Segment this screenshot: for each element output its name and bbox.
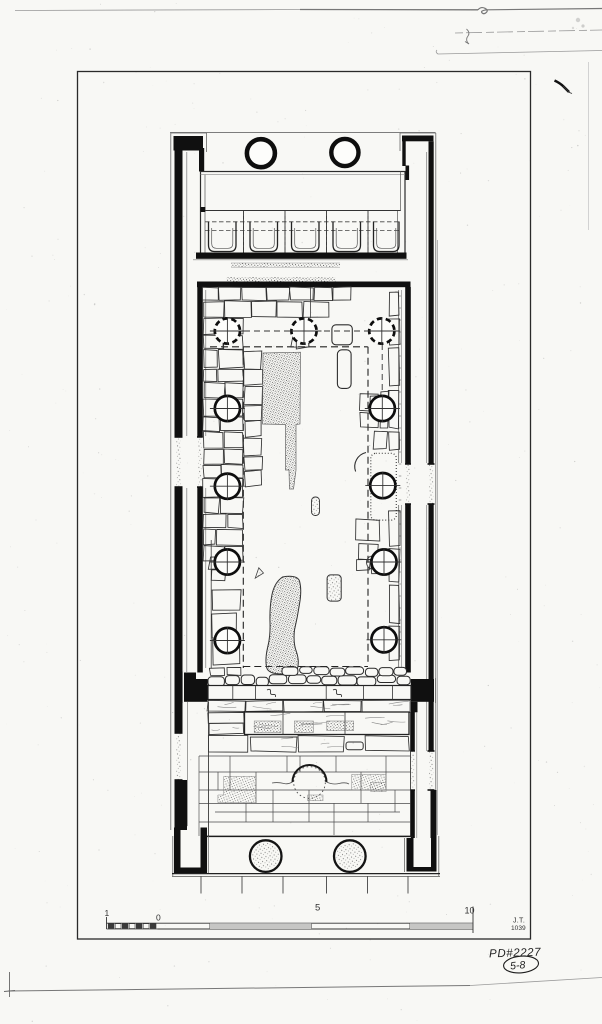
svg-text:5-8: 5-8	[510, 959, 526, 972]
svg-text:10: 10	[465, 906, 475, 916]
svg-text:1039: 1039	[511, 925, 526, 932]
svg-text:0: 0	[156, 913, 161, 923]
svg-text:1: 1	[105, 908, 110, 918]
svg-text:J.T.: J.T.	[513, 918, 525, 925]
svg-text:5: 5	[315, 903, 320, 914]
